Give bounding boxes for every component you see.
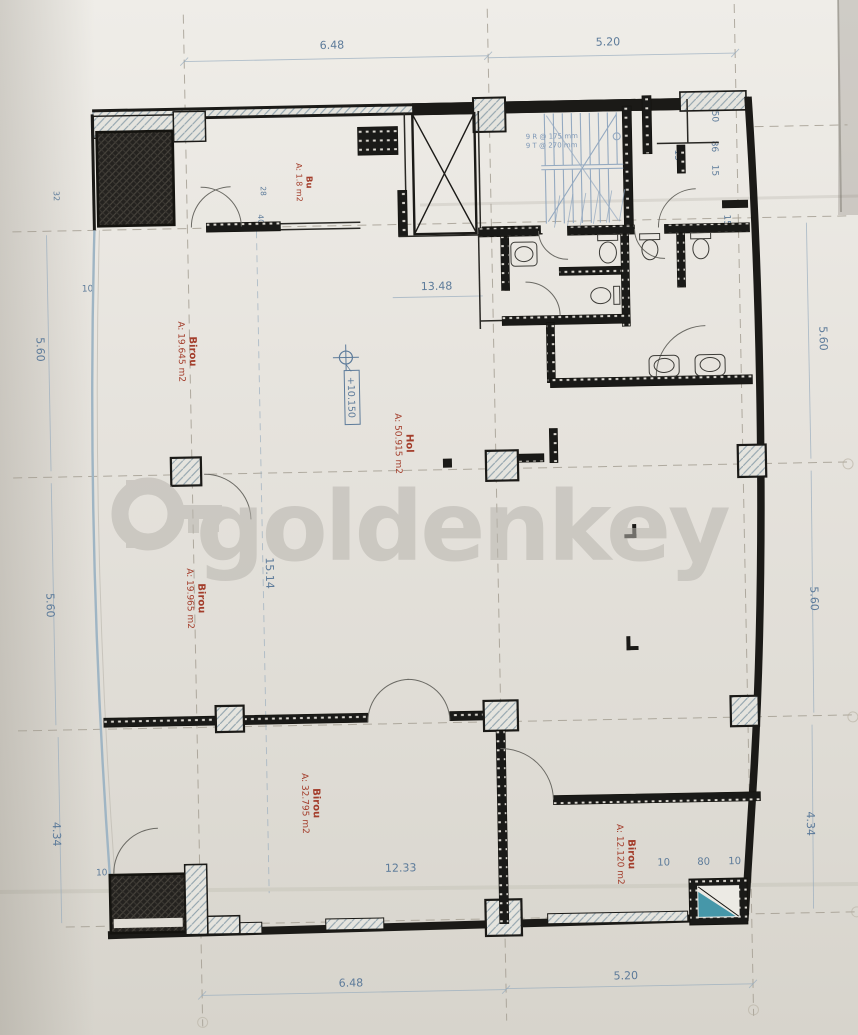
dim-left-1: 5.60 [33,337,46,362]
room-name: Birou [310,788,322,818]
toilet [640,234,660,260]
sink [695,354,725,376]
dim-right-1: 5.60 [816,326,829,351]
dim-right-3: 4.34 [804,811,817,836]
toilet [598,234,619,263]
dim-top-2: 5.20 [596,35,621,48]
scanned-floor-plan-sheet: 6.48 5.20 6.48 5.20 5.60 5.60 4.34 5.60 … [0,0,858,1035]
room-name: Birou [625,839,637,869]
dim-stair-chain-1: 50 [709,111,719,123]
dim-right-2: 5.60 [807,586,820,611]
room-name: Bu [303,176,313,189]
dim-interior-upper: 13.48 [421,279,453,293]
room-name: Birou [186,336,198,366]
floor-plan-svg: 6.48 5.20 6.48 5.20 5.60 5.60 4.34 5.60 … [0,0,858,1035]
dim-shaft-a: 10 [657,857,670,868]
room-area: A: 19.965 m2 [184,568,195,629]
level-marker: +10.150 [333,344,361,424]
sink [649,355,679,377]
room-label-birou-1: Birou A: 19.645 m2 [175,321,198,382]
dim-left-3: 4.34 [50,822,63,847]
stair-riser-note: 9 R @ 175 mm [526,132,579,141]
toilet [591,286,620,305]
room-area: A: 12.120 m2 [614,824,625,885]
level-marker-value: +10.150 [345,377,357,418]
room-label-birou-3: Birou A: 32.795 m2 [299,773,322,834]
stair-tread-note: 9 T @ 270 mm [526,141,578,150]
dim-small-1: 32 [52,191,61,201]
dim-offset-upper: 10 [82,284,94,294]
sink [511,242,537,266]
watermark-text: goldenkey [196,471,729,583]
room-area: A: 1.8 m2 [294,163,304,202]
dim-bottom-1: 6.48 [339,976,364,989]
elevator-shaft [412,113,476,234]
room-area: A: 50.915 m2 [392,413,403,474]
toilet [691,233,711,259]
watermark: goldenkey [120,471,729,583]
room-label-birou-4: Birou A: 12.120 m2 [614,824,637,885]
upper-right-rooms [642,94,749,228]
dim-shaft-c: 10 [728,856,741,867]
dim-left-2: 5.60 [43,593,56,618]
dim-stair-chain-3: 15 [709,165,719,177]
room-name: Birou [195,583,207,613]
bathrooms [478,223,752,389]
dim-interior-lower: 12.33 [385,861,417,875]
room-name: Hol [403,434,414,453]
staircase: 9 R @ 175 mm 9 T @ 270 mm [525,106,633,232]
dim-offset-lower: 10 [96,868,108,878]
room-label-hol: Hol A: 50.915 m2 [392,413,415,474]
room-label-bu: Bu A: 1.8 m2 [294,163,314,202]
shaft-top-left [97,131,175,226]
dim-top-1: 6.48 [320,39,345,52]
room-area: A: 32.795 m2 [299,773,310,834]
dim-shaft-b: 80 [697,857,710,868]
shaft-ventilation-teal [689,878,748,925]
dim-small-2: 28 [259,186,268,196]
dim-bottom-2: 5.20 [613,969,638,982]
room-area: A: 19.645 m2 [175,321,186,382]
